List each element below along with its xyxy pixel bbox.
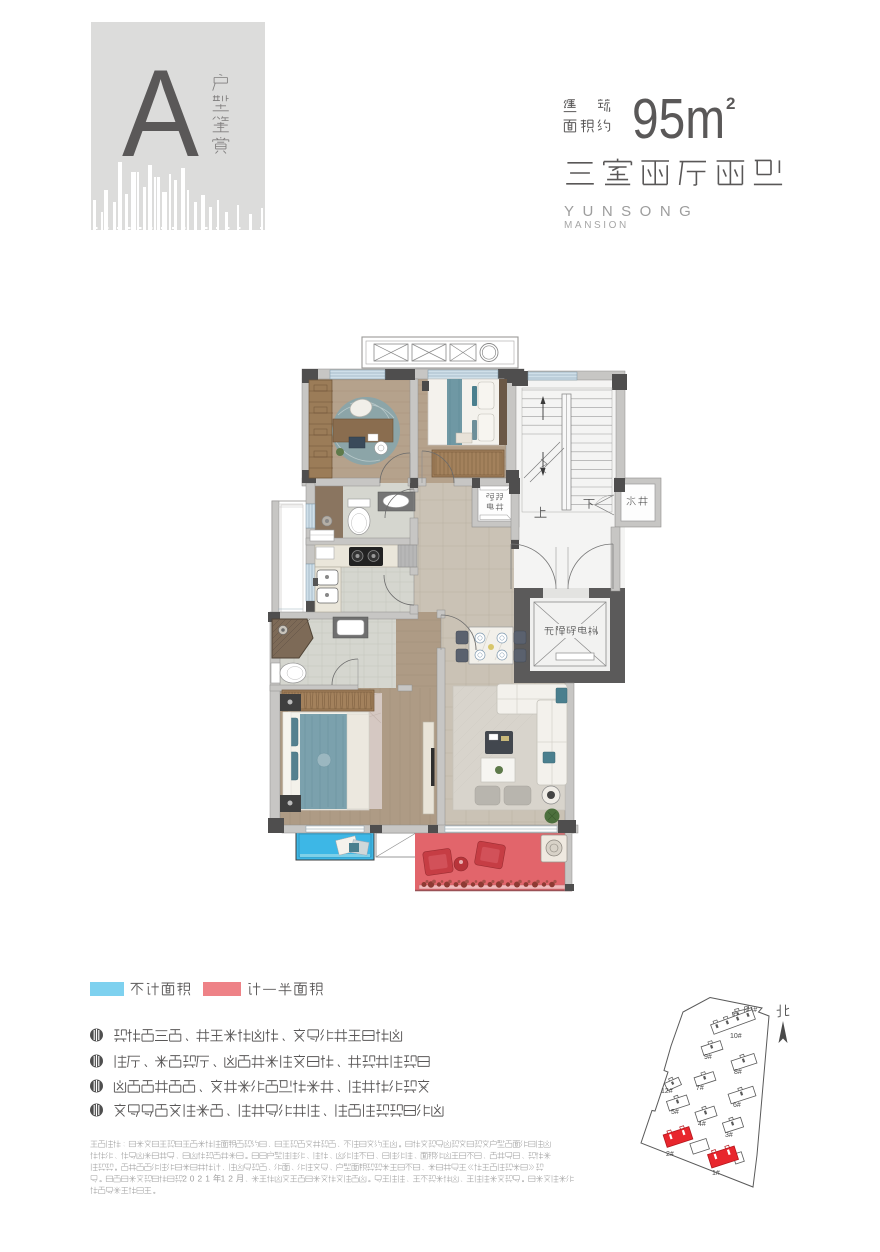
svg-text:4#: 4# (698, 1121, 706, 1128)
svg-text:2: 2 (228, 1174, 233, 1184)
svg-text:3#: 3# (725, 1132, 733, 1139)
svg-text:9#: 9# (704, 1054, 712, 1061)
svg-text:6#: 6# (733, 1102, 741, 1109)
svg-text:12#: 12# (661, 1088, 673, 1095)
svg-text:2: 2 (198, 1174, 203, 1184)
svg-text:7#: 7# (696, 1085, 704, 1092)
svg-text:1: 1 (221, 1174, 226, 1184)
svg-text:月: 月 (236, 1174, 244, 1184)
svg-text:5#: 5# (671, 1109, 679, 1116)
svg-text:0: 0 (190, 1174, 195, 1184)
svg-text:2: 2 (182, 1174, 187, 1184)
svg-text:1: 1 (205, 1174, 210, 1184)
svg-text:1#: 1# (712, 1170, 720, 1177)
svg-text:2#: 2# (666, 1151, 674, 1158)
svg-text:10#: 10# (730, 1033, 742, 1040)
svg-text:8#: 8# (734, 1069, 742, 1076)
